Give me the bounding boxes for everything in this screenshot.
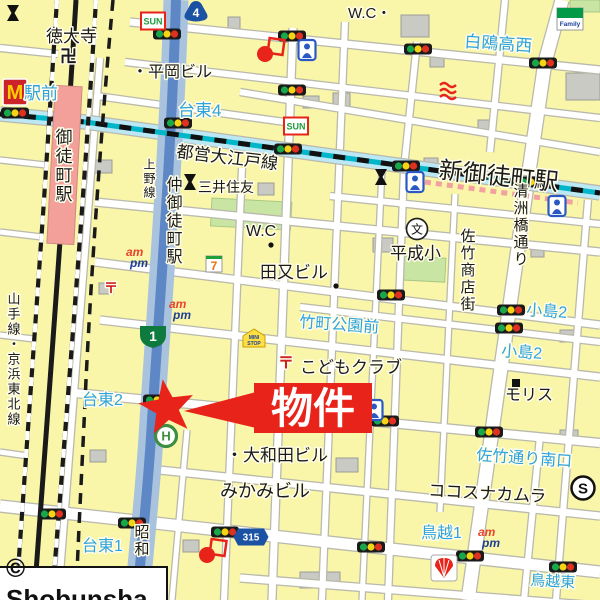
icon-letter: 7 — [211, 259, 218, 273]
map-label: 徳大寺 — [46, 27, 97, 46]
shield-number: 1 — [149, 328, 157, 344]
map-label: 三井住友 — [198, 179, 254, 195]
traffic-light-lamp — [11, 109, 18, 116]
vertical-label: 山手線・京浜東北線 — [6, 292, 21, 427]
traffic-light-icon — [377, 290, 405, 301]
map-label: 小島2 — [501, 342, 543, 363]
icon-letter: Family — [560, 21, 581, 28]
traffic-light-lamp — [485, 428, 492, 435]
traffic-light-lamp — [171, 30, 178, 37]
map-label: ・大和田ビル — [226, 446, 328, 465]
pachinko-sun-sign-icon: SUN — [141, 13, 165, 30]
traffic-light-lamp — [474, 552, 481, 559]
traffic-light-icon — [357, 542, 385, 553]
traffic-light-lamp — [182, 119, 189, 126]
traffic-light-lamp — [288, 86, 295, 93]
traffic-light-lamp — [284, 145, 291, 152]
icon-figure — [412, 176, 418, 182]
poi-dot-icon — [268, 242, 273, 247]
building-footprint — [336, 458, 358, 472]
traffic-light-lamp — [567, 563, 574, 570]
shield-number: 315 — [243, 533, 260, 544]
police-box-icon — [299, 40, 316, 60]
traffic-light-icon — [274, 144, 302, 155]
traffic-light-icon — [549, 562, 577, 573]
vertical-label: 仲御徒町駅 — [164, 176, 183, 266]
traffic-light-lamp — [395, 291, 402, 298]
icon-figure — [554, 200, 560, 206]
poi-dot — [268, 242, 273, 247]
traffic-light-lamp — [513, 324, 520, 331]
traffic-light-lamp — [367, 543, 374, 550]
traffic-light-lamp — [292, 145, 299, 152]
shell-gas-station-icon — [431, 555, 457, 581]
building-footprint — [566, 73, 600, 100]
traffic-light-icon — [404, 44, 432, 55]
traffic-light-icon — [495, 323, 523, 334]
icon-letter: STOP — [247, 341, 261, 347]
traffic-light-lamp — [459, 552, 466, 559]
map-label: こどもクラブ — [300, 357, 402, 377]
pachinko-sun-sign-icon: SUN — [284, 118, 308, 135]
poi-dot — [333, 283, 338, 288]
icon-letter: pm — [481, 536, 500, 550]
map-label: 〒 — [104, 280, 118, 296]
property-label: 物件 — [271, 385, 355, 432]
map-label: 〒 — [278, 355, 294, 372]
traffic-light-lamp — [414, 45, 421, 52]
traffic-light-lamp — [500, 306, 507, 313]
map-label: W.C — [246, 223, 276, 240]
icon-letter: pm — [129, 256, 148, 270]
traffic-light-icon — [1, 108, 29, 119]
map-label: W.C・ — [348, 5, 391, 22]
poi-circle — [199, 547, 215, 563]
familymart-icon: Family — [557, 8, 583, 30]
traffic-light-lamp — [375, 543, 382, 550]
traffic-light-lamp — [402, 162, 409, 169]
map-canvas[interactable]: 41315MSUNSUNampmampmampm7MINISTOPFamilyH… — [0, 0, 600, 600]
building-footprint — [90, 450, 106, 462]
traffic-light-lamp — [515, 306, 522, 313]
traffic-light-lamp — [156, 30, 163, 37]
icon-stripe — [557, 8, 583, 18]
traffic-light-lamp — [505, 324, 512, 331]
map-label: 台東2 — [82, 391, 123, 409]
traffic-light-lamp — [395, 162, 402, 169]
subway-entrance-icon — [549, 196, 566, 216]
traffic-light-lamp — [296, 32, 303, 39]
traffic-light-lamp — [221, 528, 228, 535]
icon-letter: SUN — [286, 122, 305, 132]
school-icon: 文 — [407, 219, 428, 240]
vertical-label: 上野線 — [142, 158, 156, 200]
traffic-light-lamp — [214, 528, 221, 535]
map-label: 鳥越東 — [530, 571, 576, 591]
poi-square — [512, 379, 520, 387]
map-viewport: 41315MSUNSUNampmampmampm7MINISTOPFamilyH… — [0, 0, 600, 600]
icon-letter: S — [578, 481, 588, 498]
traffic-light-lamp — [389, 417, 396, 424]
map-label: 田又ビル — [260, 263, 328, 282]
traffic-light-icon — [497, 305, 525, 316]
traffic-light-lamp — [19, 109, 26, 116]
traffic-light-lamp — [559, 563, 566, 570]
traffic-light-lamp — [4, 109, 11, 116]
traffic-light-icon — [529, 58, 557, 69]
vertical-label: 佐竹商店街 — [459, 228, 476, 313]
map-label: 駅前 — [24, 84, 58, 103]
traffic-light-lamp — [167, 119, 174, 126]
vertical-label: 御徒町駅 — [53, 128, 73, 204]
icon-letter: pm — [172, 308, 191, 322]
traffic-light-lamp — [174, 119, 181, 126]
traffic-light-lamp — [498, 324, 505, 331]
map-label: 鳥越1 — [421, 524, 462, 542]
traffic-light-lamp — [387, 291, 394, 298]
traffic-light-lamp — [48, 510, 55, 517]
shield-number: 4 — [193, 6, 200, 20]
map-label: モリス — [505, 387, 553, 404]
prefectural-route-shield: 315 — [234, 529, 269, 546]
traffic-light-lamp — [281, 86, 288, 93]
icon-letter: M — [7, 82, 24, 104]
traffic-light-lamp — [163, 30, 170, 37]
copyright-text: © Shobunsha — [6, 553, 166, 600]
icon-figure — [304, 44, 310, 50]
poi-circle — [257, 46, 273, 62]
building-marker-icon — [512, 379, 520, 387]
traffic-light-lamp — [56, 510, 63, 517]
building-footprint — [94, 160, 112, 173]
map-label: 卍 — [60, 47, 77, 66]
seven-eleven-icon: 7 — [206, 256, 222, 273]
building-footprint — [183, 540, 199, 552]
icon-letter: SUN — [143, 17, 162, 27]
traffic-light-icon — [38, 509, 66, 520]
building-footprint — [401, 15, 429, 37]
traffic-light-lamp — [288, 32, 295, 39]
map-label: みかみビル — [220, 481, 310, 501]
traffic-light-lamp — [493, 428, 500, 435]
traffic-light-lamp — [466, 552, 473, 559]
map-label: 台東4 — [178, 101, 221, 120]
map-label: 平成小 — [390, 244, 441, 263]
traffic-light-lamp — [539, 59, 546, 66]
map-label: ・平岡ビル — [132, 63, 212, 81]
icon-letter: 文 — [411, 222, 423, 237]
traffic-light-lamp — [380, 291, 387, 298]
map-label: 小島2 — [526, 301, 568, 322]
building-footprint — [258, 183, 274, 195]
traffic-light-lamp — [296, 86, 303, 93]
traffic-light-lamp — [422, 45, 429, 52]
traffic-light-icon — [392, 161, 420, 172]
traffic-light-lamp — [121, 519, 128, 526]
traffic-light-lamp — [478, 428, 485, 435]
traffic-light-lamp — [277, 145, 284, 152]
copyright-badge: © Shobunsha — [0, 566, 168, 600]
traffic-light-icon — [475, 427, 503, 438]
subway-entrance-icon — [407, 172, 424, 192]
traffic-light-lamp — [41, 510, 48, 517]
traffic-light-lamp — [360, 543, 367, 550]
traffic-light-lamp — [410, 162, 417, 169]
vertical-label: 清洲橋通り — [512, 183, 529, 268]
traffic-light-lamp — [407, 45, 414, 52]
traffic-light-lamp — [552, 563, 559, 570]
traffic-light-lamp — [507, 306, 514, 313]
icon-letter: H — [161, 429, 170, 444]
traffic-light-lamp — [547, 59, 554, 66]
traffic-light-icon — [456, 551, 484, 562]
traffic-light-lamp — [532, 59, 539, 66]
traffic-light-icon — [278, 85, 306, 96]
poi-dot-icon — [333, 283, 338, 288]
supermarket-icon: S — [572, 477, 595, 500]
